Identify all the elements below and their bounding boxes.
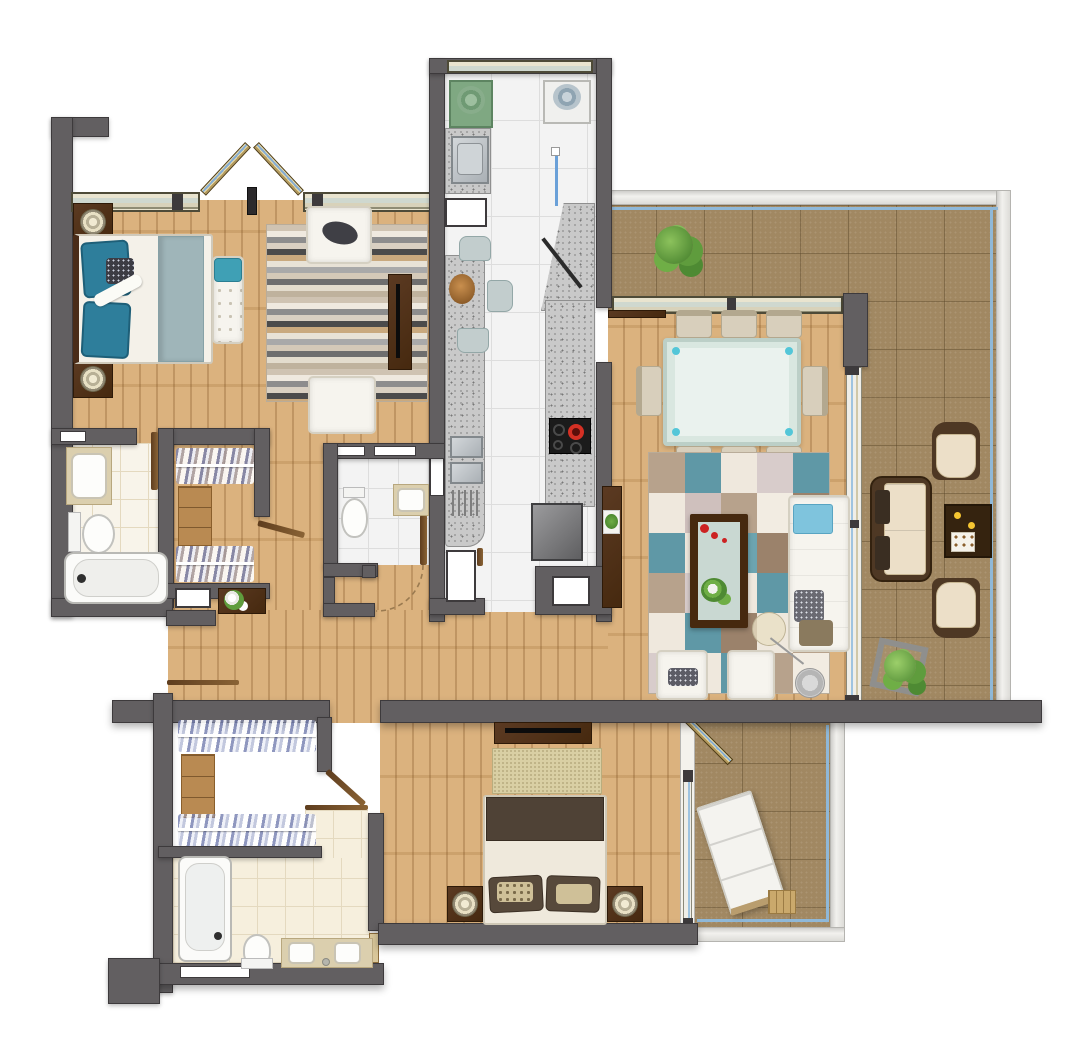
door-swing-arc — [372, 563, 428, 615]
red-flowers — [700, 524, 709, 533]
bathtub-faucet — [77, 574, 86, 583]
closet-rail — [176, 464, 254, 467]
loveseat-dark-pillow — [875, 490, 890, 524]
terrace-chair-cushion — [936, 434, 976, 478]
bench-teal-pillow — [214, 258, 242, 282]
vanity-basin — [334, 942, 361, 964]
rug-checker-cell — [649, 453, 685, 493]
bathroom1-door-leaf — [151, 432, 158, 490]
bed2-accent-pillow — [556, 884, 592, 904]
terrace2-sliding-door-track — [683, 778, 692, 928]
bathroom3-wall-niche — [180, 966, 250, 978]
teal-pillow — [81, 301, 132, 359]
loveseat-dark-pillow — [875, 536, 890, 570]
dining-chair — [721, 310, 757, 338]
table-lamp — [452, 891, 478, 917]
bathroom2-niche-1 — [337, 446, 365, 456]
dining-chair — [766, 310, 802, 338]
blue-runner-blanket — [158, 236, 204, 362]
sink-bowl — [457, 143, 483, 175]
kitchen-wall-right-upper — [596, 58, 612, 308]
tv-console — [388, 274, 412, 370]
rug-checker-cell — [649, 573, 685, 613]
table-corner-dot — [785, 347, 793, 355]
terrace-chair-cushion — [936, 582, 976, 628]
table-plant — [701, 578, 727, 602]
dining-chair — [636, 366, 662, 416]
bedroom2-tv-console — [494, 722, 592, 744]
blue-towel — [793, 504, 833, 534]
double-sink-upper — [450, 436, 483, 458]
table-lamp — [612, 891, 638, 917]
console-flowers — [224, 590, 244, 610]
french-door-center-post — [247, 187, 257, 215]
table-corner-dot — [785, 428, 793, 436]
terrace-railing-right — [996, 190, 1011, 712]
rug-checker-cell — [793, 453, 829, 493]
toilet-tank — [68, 512, 81, 552]
table-lamp — [80, 366, 106, 392]
washer-drum — [553, 84, 581, 110]
toilet-bowl — [82, 514, 115, 554]
closet-shelf-unit — [181, 754, 215, 818]
bathroom3-lintel — [305, 805, 368, 810]
toilet-tank — [343, 487, 365, 498]
burner-red-large — [568, 424, 584, 440]
block-wall-left — [153, 693, 173, 993]
coffee-table — [690, 514, 748, 628]
kitchen-nook-left — [446, 550, 476, 602]
closet1-wall-niche — [175, 588, 211, 608]
bar-stool — [459, 236, 491, 261]
rug-checker-cell — [721, 453, 757, 493]
table-lamp — [80, 209, 106, 235]
hall-lintel — [167, 680, 239, 685]
bar-stool — [457, 328, 489, 353]
fruit-bowl — [449, 274, 475, 304]
terrace-plant-large — [655, 226, 693, 264]
vanity-basin — [71, 453, 107, 499]
tv-screen — [396, 284, 400, 358]
bed2-accent-pillow — [497, 882, 533, 902]
bathroom2-niche-2 — [374, 446, 416, 456]
dish-rack — [452, 490, 482, 516]
closet-rail — [178, 828, 316, 831]
kitchen-counter-right — [545, 300, 595, 507]
floor-lamp-base — [795, 668, 825, 698]
closet2-stub — [317, 717, 332, 772]
armchair — [308, 376, 376, 434]
bathroom2-wall-left — [323, 443, 338, 568]
table-corner-dot — [672, 347, 680, 355]
entry-nook-wall-bottom — [323, 603, 375, 617]
closet1-wall-right — [254, 428, 270, 517]
candle-dot — [968, 522, 975, 529]
bathroom2-door-leaf — [420, 515, 427, 565]
kitchen-island-block — [531, 503, 583, 561]
terrace-railing-top — [606, 190, 1011, 205]
sofa-brown-cushion — [799, 620, 833, 646]
corner-pillar — [843, 293, 868, 367]
vanity-accessory — [322, 958, 330, 966]
kitchen-nook-right — [552, 576, 590, 606]
terrace2-frame-bottom — [680, 927, 845, 942]
terrace2-glass-line-bottom — [697, 919, 829, 922]
toilet-bowl — [341, 498, 368, 538]
kitchen-door-recess — [445, 198, 487, 227]
kitchen-window-top — [447, 60, 593, 73]
dining-wall-shelf — [608, 310, 666, 318]
loveseat-cushions — [884, 483, 926, 575]
toilet-tank — [241, 958, 273, 969]
glass-partition-line — [555, 152, 558, 206]
rug-checker-cell — [649, 613, 685, 653]
terrace-side-table — [768, 890, 796, 914]
door-hinge-mark — [845, 367, 859, 375]
sofa-patterned-pillow — [794, 590, 824, 622]
hall-step-wall — [166, 610, 216, 626]
bedroom2-rug — [492, 748, 602, 794]
candle-dot — [954, 512, 961, 519]
bathroom1-wall-niche — [60, 431, 86, 442]
french-door-leaf-right — [253, 142, 304, 196]
rug-checker-cell — [685, 453, 721, 493]
armchair-patterned-pillow — [668, 668, 698, 686]
bed2-dark-duvet — [486, 797, 604, 841]
door-hinge-mark — [683, 770, 693, 782]
burner-dark — [570, 442, 582, 454]
closet-rail — [178, 734, 316, 737]
washer-drum — [457, 86, 485, 114]
floor-plan-canvas — [0, 0, 1088, 1059]
terrace-plant-small — [884, 650, 916, 682]
cabinet-plant-leaves — [605, 514, 618, 529]
french-door-leaf-left — [200, 142, 251, 196]
kitchen-door-jamb — [477, 548, 483, 566]
burner-dark — [553, 424, 565, 436]
dining-chair — [676, 310, 712, 338]
rug-checker-cell — [649, 493, 685, 533]
double-sink-lower — [450, 462, 483, 484]
closet-shelf-unit — [178, 486, 212, 546]
bathtub-drain — [214, 932, 222, 940]
table-corner-dot — [672, 428, 680, 436]
block-wall-right — [368, 813, 384, 931]
dining-table-glass-sheen — [675, 348, 789, 436]
closet-rail — [176, 562, 254, 565]
terrace2-glass-line-right — [826, 725, 829, 921]
bedroom2-tv — [505, 728, 581, 733]
burner-dark — [553, 440, 563, 450]
armchair — [727, 650, 775, 700]
block-corner-cap — [108, 958, 160, 1004]
kitchen-wall-left — [429, 58, 445, 622]
rug-checker-cell — [757, 453, 793, 493]
terrace-tray — [951, 532, 975, 552]
dining-chair — [802, 366, 828, 416]
terrace-glass-line-right — [990, 207, 993, 705]
main-wall-horizontal-right — [380, 700, 1042, 723]
living-tv-cabinet — [602, 486, 622, 608]
bedroom2-wall-bottom — [378, 923, 698, 945]
terrace-glass-line-top — [612, 207, 998, 210]
terrace2-frame-right — [830, 715, 845, 940]
floor-lamp-shade — [752, 612, 786, 646]
vanity-basin — [288, 942, 315, 964]
closet2-door-leaf — [325, 769, 366, 807]
rug-checker-cell — [649, 533, 685, 573]
window-mullion — [172, 194, 183, 210]
glass-partition-cap — [551, 147, 560, 156]
wall-sink-basin — [397, 488, 425, 512]
bar-stool — [487, 280, 513, 312]
